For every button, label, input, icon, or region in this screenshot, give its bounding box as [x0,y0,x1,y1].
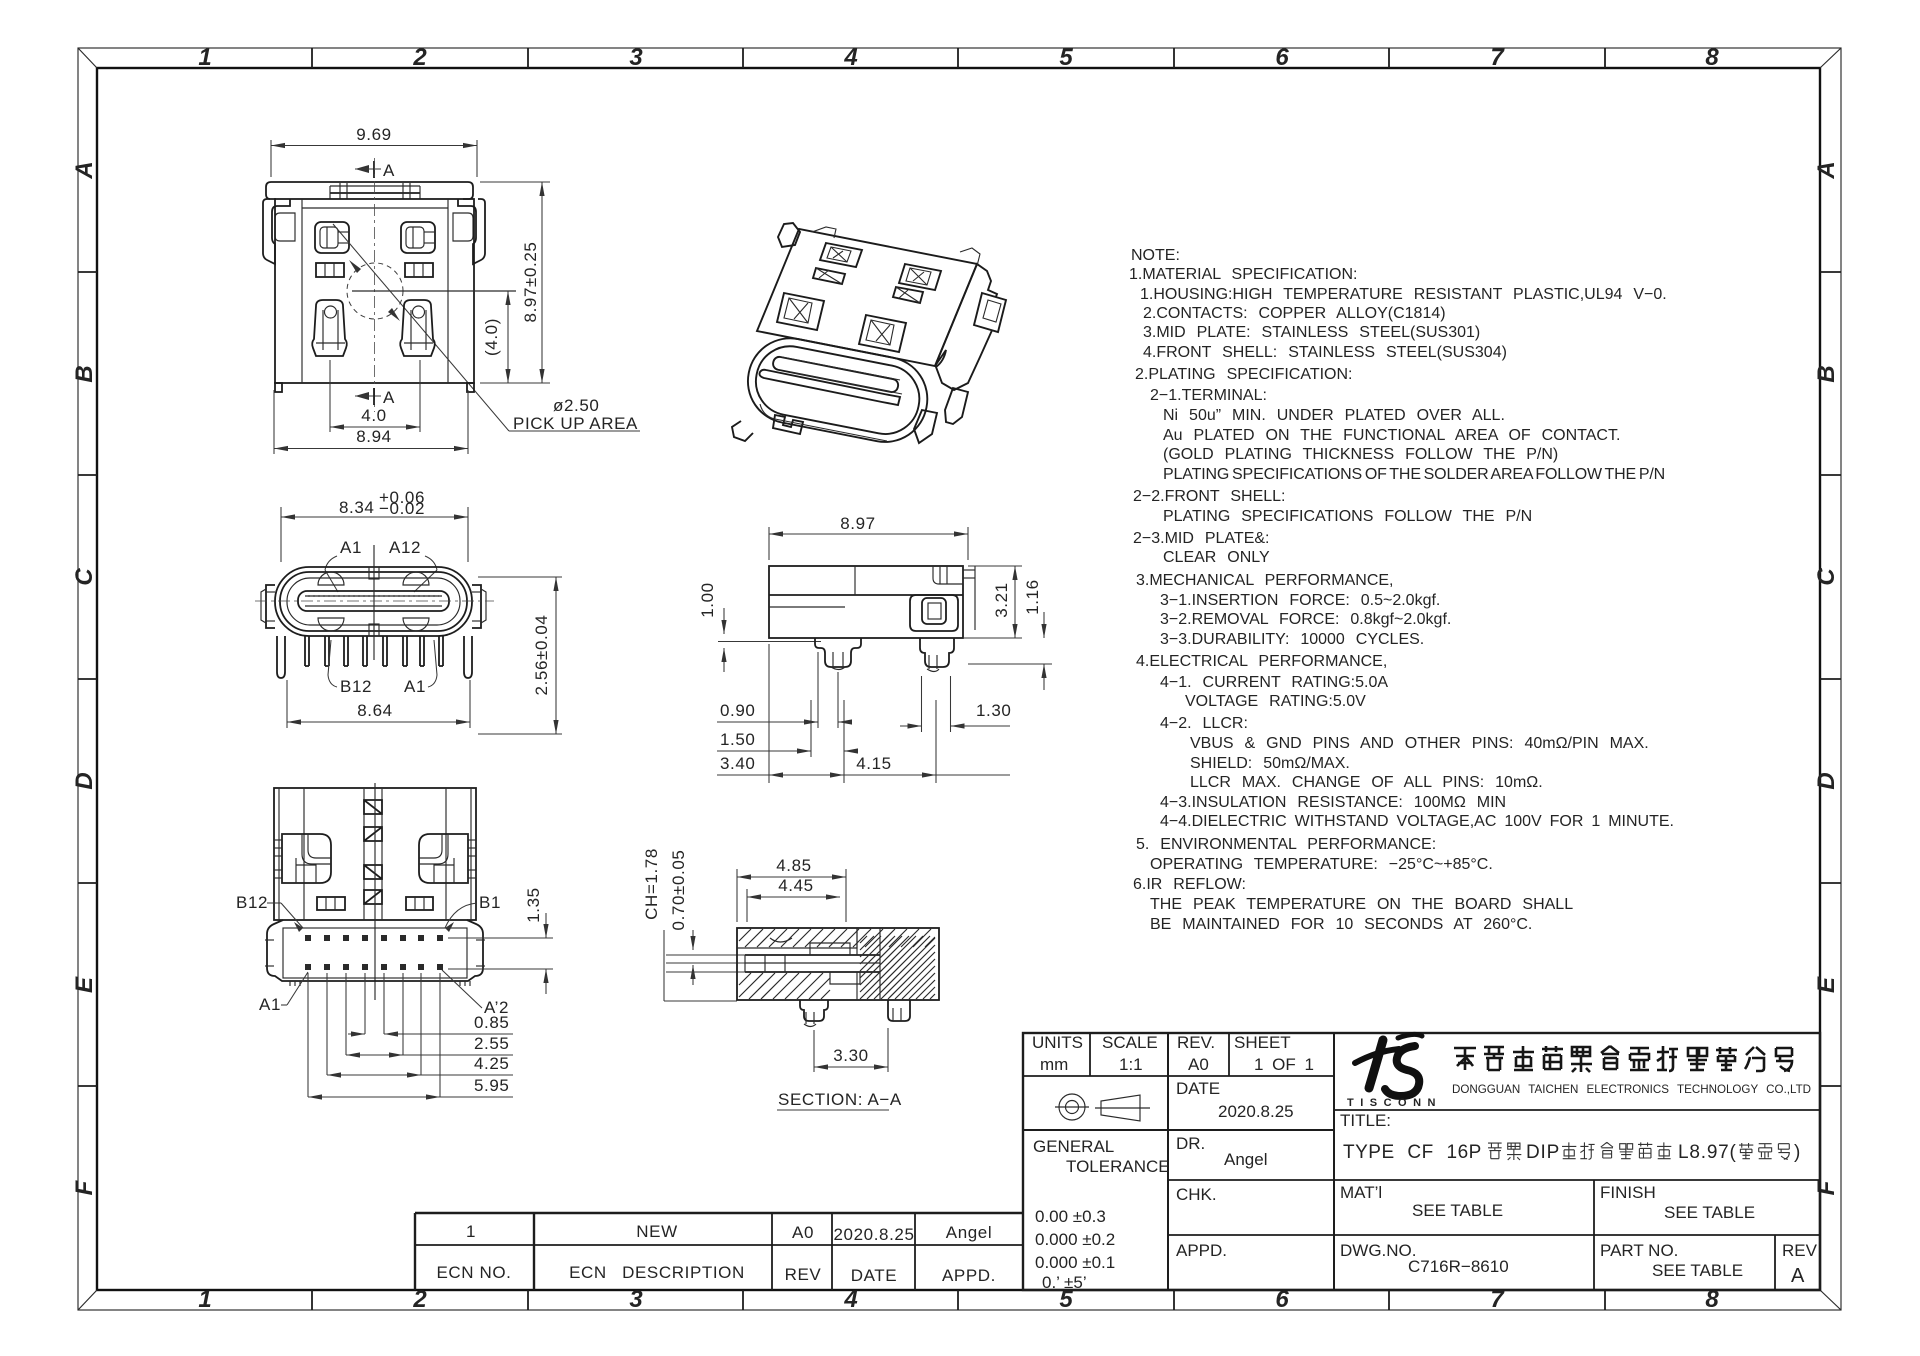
svg-text:1.30: 1.30 [976,701,1012,720]
svg-text:ECN NO.: ECN NO. [436,1263,511,1282]
svg-text:E: E [1813,976,1840,993]
svg-text:DWG.NO.: DWG.NO. [1340,1241,1417,1260]
svg-text:LLCR MAX. CHANGE OF ALL PINS:: LLCR MAX. CHANGE OF ALL PINS: 10mΩ. [1190,774,1543,791]
svg-text:1: 1 [198,1286,211,1313]
svg-text:3: 3 [629,1286,643,1313]
svg-text:mm: mm [1040,1055,1068,1074]
svg-text:CHK.: CHK. [1176,1185,1217,1204]
svg-text:A: A [383,161,395,180]
svg-text:8.97: 8.97 [840,514,876,533]
svg-text:0.’ ±5’: 0.’ ±5’ [1042,1273,1087,1292]
svg-text:THE PEAK TEMPERATURE ON THE BO: THE PEAK TEMPERATURE ON THE BOARD SHALL [1150,896,1573,913]
svg-text:PLATING SPECIFICATIONS FOLLOW: PLATING SPECIFICATIONS FOLLOW THE P/N [1163,508,1532,525]
svg-text:REV.: REV. [1177,1033,1215,1052]
svg-text:DONGGUAN TAICHEN ELECTRONICS T: DONGGUAN TAICHEN ELECTRONICS TECHNOLOGY … [1452,1083,1811,1096]
svg-text:B1: B1 [479,893,501,912]
svg-text:L8.97(: L8.97( [1678,1142,1737,1163]
svg-text:9.69: 9.69 [356,125,392,144]
svg-text:): ) [1794,1142,1800,1163]
svg-text:DATE: DATE [1176,1079,1220,1098]
svg-text:4−2. LLCR:: 4−2. LLCR: [1160,715,1248,732]
svg-text:A: A [1791,1265,1805,1287]
svg-text:4−1. CURRENT RATING:5.0A: 4−1. CURRENT RATING:5.0A [1160,674,1388,691]
svg-text:E: E [71,976,98,993]
svg-text:1.50: 1.50 [720,730,756,749]
svg-text:A1: A1 [340,538,362,557]
svg-text:ø2.50: ø2.50 [553,396,599,415]
svg-text:1.HOUSING:HIGH TEMPERATURE RES: 1.HOUSING:HIGH TEMPERATURE RESISTANT PLA… [1140,286,1667,303]
svg-text:SEE TABLE: SEE TABLE [1664,1203,1755,1222]
svg-text:2−1.TERMINAL:: 2−1.TERMINAL: [1150,387,1267,404]
svg-text:8.94: 8.94 [356,427,392,446]
svg-text:A12: A12 [389,538,421,557]
svg-text:4.ELECTRICAL PERFORMANCE,: 4.ELECTRICAL PERFORMANCE, [1136,653,1387,670]
svg-text:3−2.REMOVAL FORCE: 0.8kgf~2.0k: 3−2.REMOVAL FORCE: 0.8kgf~2.0kgf. [1160,611,1451,628]
svg-text:PICK UP AREA: PICK UP AREA [513,414,638,433]
svg-text:4−4.DIELECTRIC WITHSTAND VOLTA: 4−4.DIELECTRIC WITHSTAND VOLTAGE,AC 100V… [1160,813,1674,830]
svg-text:A1: A1 [259,995,281,1014]
svg-text:5. ENVIRONMENTAL PERFORMANCE:: 5. ENVIRONMENTAL PERFORMANCE: [1136,836,1436,853]
svg-text:2.CONTACTS: COPPER ALLOY(C1814: 2.CONTACTS: COPPER ALLOY(C1814) [1143,305,1446,322]
svg-text:APPD.: APPD. [942,1266,996,1285]
svg-text:3−1.INSERTION FORCE: 0.5~2.0kg: 3−1.INSERTION FORCE: 0.5~2.0kgf. [1160,592,1440,609]
svg-text:BE MAINTAINED FOR 10 SECONDS A: BE MAINTAINED FOR 10 SECONDS AT 260°C. [1150,916,1532,933]
svg-text:4: 4 [843,1286,857,1313]
svg-text:2−2.FRONT SHELL:: 2−2.FRONT SHELL: [1133,488,1285,505]
svg-text:4.85: 4.85 [776,856,812,875]
svg-text:DIP: DIP [1526,1142,1560,1163]
svg-text:SCALE: SCALE [1102,1033,1158,1052]
svg-text:8.97±0.25: 8.97±0.25 [521,242,540,323]
svg-text:1: 1 [466,1222,476,1241]
svg-text:APPD.: APPD. [1176,1241,1227,1260]
svg-text:1:1: 1:1 [1119,1055,1143,1074]
svg-text:B: B [71,365,98,382]
svg-text:1.35: 1.35 [524,887,543,923]
svg-text:DATE: DATE [851,1266,897,1285]
svg-text:SECTION: A−A: SECTION: A−A [778,1090,902,1109]
svg-text:0.000 ±0.2: 0.000 ±0.2 [1035,1230,1115,1249]
svg-text:2−3.MID PLATE&:: 2−3.MID PLATE&: [1133,530,1269,547]
svg-text:4−3.INSULATION RESISTANCE: 100: 4−3.INSULATION RESISTANCE: 100MΩ MIN [1160,794,1506,811]
svg-text:2.56±0.04: 2.56±0.04 [532,615,551,696]
svg-text:4.FRONT SHELL: STAINLESS STEEL: 4.FRONT SHELL: STAINLESS STEEL(SUS304) [1143,344,1507,361]
svg-text:Angel: Angel [1224,1150,1267,1169]
svg-text:0.90: 0.90 [720,701,756,720]
svg-text:Au PLATED ON THE FUNCTIONAL AR: Au PLATED ON THE FUNCTIONAL AREA OF CONT… [1163,427,1620,444]
svg-text:CLEAR ONLY: CLEAR ONLY [1163,549,1270,566]
svg-text:NOTE:: NOTE: [1131,247,1180,264]
svg-text:3.30: 3.30 [833,1046,869,1065]
svg-text:4: 4 [843,44,857,71]
svg-text:4.0: 4.0 [361,406,386,425]
svg-text:VOLTAGE RATING:5.0V: VOLTAGE RATING:5.0V [1185,693,1366,710]
svg-text:UNITS: UNITS [1032,1033,1083,1052]
svg-text:3: 3 [629,44,643,71]
svg-text:0.000 ±0.1: 0.000 ±0.1 [1035,1253,1115,1272]
svg-text:B12: B12 [340,677,372,696]
svg-text:2: 2 [412,44,427,71]
svg-text:TOLERANCE: TOLERANCE [1066,1157,1170,1176]
svg-text:4.45: 4.45 [778,876,814,895]
svg-text:A: A [71,161,98,179]
svg-text:SHEET: SHEET [1234,1033,1291,1052]
svg-text:SHIELD: 50mΩ/MAX.: SHIELD: 50mΩ/MAX. [1190,755,1350,772]
svg-text:OPERATING TEMPERATURE: −25°C~+: OPERATING TEMPERATURE: −25°C~+85°C. [1150,856,1493,873]
svg-text:1.MATERIAL SPECIFICATION:: 1.MATERIAL SPECIFICATION: [1129,266,1357,283]
svg-text:2020.8.25: 2020.8.25 [833,1225,914,1244]
svg-text:6.IR REFLOW:: 6.IR REFLOW: [1133,876,1246,893]
svg-text:0.85: 0.85 [474,1013,510,1032]
svg-text:−0.02: −0.02 [379,499,425,518]
svg-text:B: B [1813,365,1840,382]
svg-text:F: F [71,1179,98,1195]
svg-text:8.64: 8.64 [357,701,393,720]
svg-text:1: 1 [198,44,211,71]
svg-text:2: 2 [412,1286,427,1313]
svg-text:TISCONN: TISCONN [1347,1097,1442,1109]
svg-text:2.55: 2.55 [474,1034,510,1053]
svg-text:SEE TABLE: SEE TABLE [1652,1261,1743,1280]
svg-text:B12: B12 [236,893,268,912]
svg-text:DR.: DR. [1176,1134,1205,1153]
svg-text:REV: REV [1782,1241,1818,1260]
svg-text:C: C [71,568,98,586]
svg-text:PLATING SPECIFICATIONS OF THE: PLATING SPECIFICATIONS OF THE SOLDER ARE… [1163,466,1665,483]
svg-text:0.00 ±0.3: 0.00 ±0.3 [1035,1207,1106,1226]
svg-text:NEW: NEW [636,1222,677,1241]
svg-text:A: A [383,388,395,407]
svg-text:5.95: 5.95 [474,1076,510,1095]
svg-text:A0: A0 [792,1223,814,1242]
svg-text:7: 7 [1490,44,1505,71]
svg-text:3.MECHANICAL PERFORMANCE,: 3.MECHANICAL PERFORMANCE, [1136,572,1394,589]
svg-text:TYPE CF 16P: TYPE CF 16P [1343,1142,1482,1163]
svg-text:GENERAL: GENERAL [1033,1137,1114,1156]
svg-text:2020.8.25: 2020.8.25 [1218,1102,1294,1121]
svg-text:4.25: 4.25 [474,1054,510,1073]
svg-text:CH=1.78: CH=1.78 [642,848,661,920]
svg-text:3−3.DURABILITY: 10000 CYCLES.: 3−3.DURABILITY: 10000 CYCLES. [1160,631,1424,648]
svg-text:6: 6 [1275,44,1289,71]
svg-text:4.15: 4.15 [856,754,892,773]
svg-text:D: D [71,772,98,789]
svg-text:A1: A1 [404,677,426,696]
svg-text:TITLE:: TITLE: [1340,1111,1391,1130]
svg-text:ECN DESCRIPTION: ECN DESCRIPTION [569,1263,745,1282]
svg-text:D: D [1813,772,1840,789]
svg-text:0.70±0.05: 0.70±0.05 [669,850,688,931]
svg-text:5: 5 [1059,44,1073,71]
svg-text:PART NO.: PART NO. [1600,1241,1678,1260]
svg-text:Angel: Angel [946,1223,992,1242]
svg-text:8.34: 8.34 [339,498,375,517]
svg-text:3.MID PLATE: STAINLESS STEEL(S: 3.MID PLATE: STAINLESS STEEL(SUS301) [1143,324,1480,341]
svg-text:C: C [1813,568,1840,586]
svg-text:1 OF 1: 1 OF 1 [1254,1055,1314,1074]
svg-text:1.16: 1.16 [1023,579,1042,615]
svg-text:REV: REV [785,1265,822,1284]
svg-text:A: A [1813,161,1840,179]
svg-text:1.00: 1.00 [698,582,717,618]
svg-text:8: 8 [1705,44,1719,71]
svg-text:(GOLD PLATING THICKNESS FOLLOW: (GOLD PLATING THICKNESS FOLLOW THE P/N) [1163,446,1558,463]
svg-text:(4.0): (4.0) [482,318,501,356]
svg-text:FINISH: FINISH [1600,1183,1656,1202]
svg-text:3.21: 3.21 [992,582,1011,618]
svg-text:2.PLATING SPECIFICATION:: 2.PLATING SPECIFICATION: [1135,366,1353,383]
svg-text:C716R−8610: C716R−8610 [1408,1257,1509,1276]
svg-text:SEE TABLE: SEE TABLE [1412,1201,1503,1220]
svg-text:F: F [1813,1179,1840,1195]
svg-text:Ni 50u” MIN. UNDER PLATED OVER: Ni 50u” MIN. UNDER PLATED OVER ALL. [1163,407,1505,424]
svg-text:A0: A0 [1188,1055,1209,1074]
svg-text:MAT’l: MAT’l [1340,1183,1382,1202]
svg-text:VBUS & GND PINS AND OTHER PINS: VBUS & GND PINS AND OTHER PINS: 40mΩ/PIN… [1190,735,1649,752]
svg-text:3.40: 3.40 [720,754,756,773]
